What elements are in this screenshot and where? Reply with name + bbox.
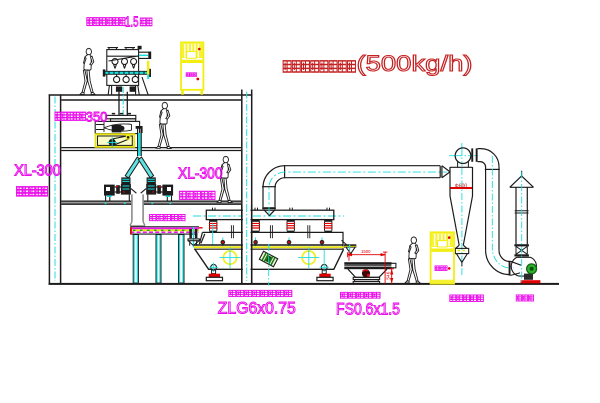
svg-text:XL-300: XL-300 (14, 163, 61, 180)
svg-text:FS0.6x1.5: FS0.6x1.5 (336, 301, 400, 319)
svg-text:1500: 1500 (361, 249, 371, 255)
svg-text:Φ600: Φ600 (455, 183, 468, 189)
svg-text:ZLG6x0.75: ZLG6x0.75 (218, 299, 296, 317)
svg-text:XL-300: XL-300 (178, 166, 223, 183)
svg-text:546: 546 (385, 271, 391, 279)
svg-text:350: 350 (86, 109, 108, 124)
svg-text:1.5: 1.5 (125, 15, 139, 31)
svg-text:(500kg/h): (500kg/h) (357, 51, 473, 76)
